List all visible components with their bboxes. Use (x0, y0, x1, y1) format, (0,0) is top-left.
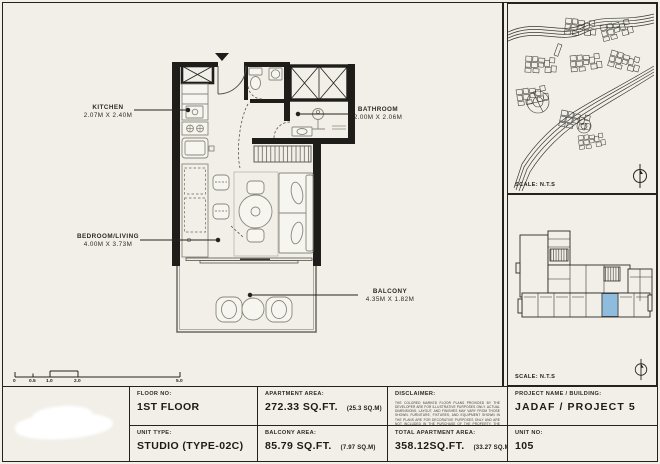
balcony-area-value: 85.79 SQ.FT.(7.97 SQ.M) (265, 440, 380, 452)
scale-bar-label: 2.0 (74, 379, 81, 384)
floor-no-cell: FLOOR NO: 1ST FLOOR (129, 387, 257, 425)
balcony-label: BALCONY 4.35M X 1.82M (360, 288, 420, 304)
balcony-sliding-door (186, 258, 312, 263)
title-block: FLOOR NO: 1ST FLOOR APARTMENT AREA: 272.… (3, 386, 657, 462)
bathroom-fixtures (292, 109, 346, 137)
scale-bar-label: 1.0 (46, 379, 53, 384)
area-sqft: 272.33 SQ.FT. (265, 401, 338, 413)
keyplan-scale-label: SCALE: N.T.S (515, 374, 555, 380)
unit-highlight (602, 294, 618, 317)
building-key-plan (508, 195, 654, 383)
logo-whiteout (14, 410, 114, 443)
room-name: KITCHEN (72, 104, 144, 112)
panel-divider-line (502, 3, 504, 386)
kitchen-label: KITCHEN 2.07M X 2.40M (72, 104, 144, 120)
scale-bar-label: 0 (13, 379, 16, 384)
unit-type-value: STUDIO (TYPE-02C) (137, 440, 250, 452)
scale-bar-label: 5.0 (176, 379, 183, 384)
wc-fixtures (249, 68, 282, 90)
area-sqm: (33.27 SQ.M) (474, 445, 507, 451)
room-name: BALCONY (360, 288, 420, 296)
total-area-cell: TOTAL APARTMENT AREA: 358.12SQ.FT.(33.27… (387, 425, 507, 463)
floor-no-value: 1ST FLOOR (137, 401, 250, 413)
graphic-scale-bar (15, 371, 180, 377)
balcony (177, 266, 316, 332)
shaft-box-small (182, 66, 213, 83)
stair-core (604, 267, 620, 281)
disclaimer-label: DISCLAIMER: (395, 391, 500, 397)
shaft-box-elevator (290, 66, 348, 100)
project-value: JADAF / PROJECT 5 (515, 401, 650, 413)
total-area-label: TOTAL APARTMENT AREA: (395, 430, 500, 436)
room-dims: 4.00M X 3.73M (62, 241, 154, 249)
disclaimer-cell: DISCLAIMER: THE COLORED MARKED FLOOR PLA… (387, 387, 507, 425)
project-cell: PROJECT NAME / BUILDING: JADAF / PROJECT… (507, 387, 657, 425)
floor-plan-drawing (0, 0, 505, 386)
floor-no-label: FLOOR NO: (137, 391, 250, 397)
north-arrow-icon (631, 163, 649, 189)
unit-no-label: UNIT NO: (515, 430, 650, 436)
apartment-area-label: APARTMENT AREA: (265, 391, 380, 397)
logo-cell (3, 387, 129, 462)
room-dims: 4.35M X 1.82M (360, 296, 420, 304)
total-area-value: 358.12SQ.FT.(33.27 SQ.M) (395, 440, 500, 452)
entry-door (218, 66, 246, 94)
area-sqft: 358.12SQ.FT. (395, 440, 465, 452)
disclaimer-text: THE COLORED MARKED FLOOR PLANS PROVIDED … (395, 401, 500, 425)
area-sqm: (25.3 SQ.M) (347, 406, 382, 412)
map-scale-label: SCALE: N.T.S (515, 182, 555, 188)
room-name: BATHROOM (350, 106, 406, 114)
key-plan-panel: SCALE: N.T.S (507, 194, 657, 386)
kitchen-fixtures (182, 84, 214, 158)
north-arrow-icon (633, 358, 649, 381)
apartment-area-cell: APARTMENT AREA: 272.33 SQ.FT.(25.3 SQ.M) (257, 387, 387, 425)
balcony-furniture (216, 297, 292, 322)
floor-plan-sheet: 0 0.5 1.0 2.0 5.0 KITCHEN 2.07M X 2.40M … (0, 0, 660, 464)
apartment-area-value: 272.33 SQ.FT.(25.3 SQ.M) (265, 401, 380, 413)
stair-core (550, 249, 568, 261)
balcony-area-label: BALCONY AREA: (265, 430, 380, 436)
bathroom-label: BATHROOM 2.00M X 2.06M (350, 106, 406, 122)
bedroom-living-label: BEDROOM/LIVING 4.00M X 3.73M (62, 233, 154, 249)
unit-type-cell: UNIT TYPE: STUDIO (TYPE-02C) (129, 425, 257, 463)
room-name: BEDROOM/LIVING (62, 233, 154, 241)
unit-type-label: UNIT TYPE: (137, 430, 250, 436)
project-label: PROJECT NAME / BUILDING: (515, 391, 650, 397)
area-sqm: (7.97 SQ.M) (341, 445, 376, 451)
wardrobe (254, 146, 311, 162)
room-dims: 2.00M X 2.06M (350, 114, 406, 122)
scale-bar-label: 0.5 (29, 379, 36, 384)
unit-no-cell: UNIT NO: 105 (507, 425, 657, 463)
location-map-panel: SCALE: N.T.S (507, 3, 657, 194)
entrance-arrow (215, 53, 229, 61)
unit-no-value: 105 (515, 440, 650, 452)
area-sqft: 85.79 SQ.FT. (265, 440, 332, 452)
balcony-area-cell: BALCONY AREA: 85.79 SQ.FT.(7.97 SQ.M) (257, 425, 387, 463)
living-furniture (182, 164, 313, 257)
room-dims: 2.07M X 2.40M (72, 112, 144, 120)
